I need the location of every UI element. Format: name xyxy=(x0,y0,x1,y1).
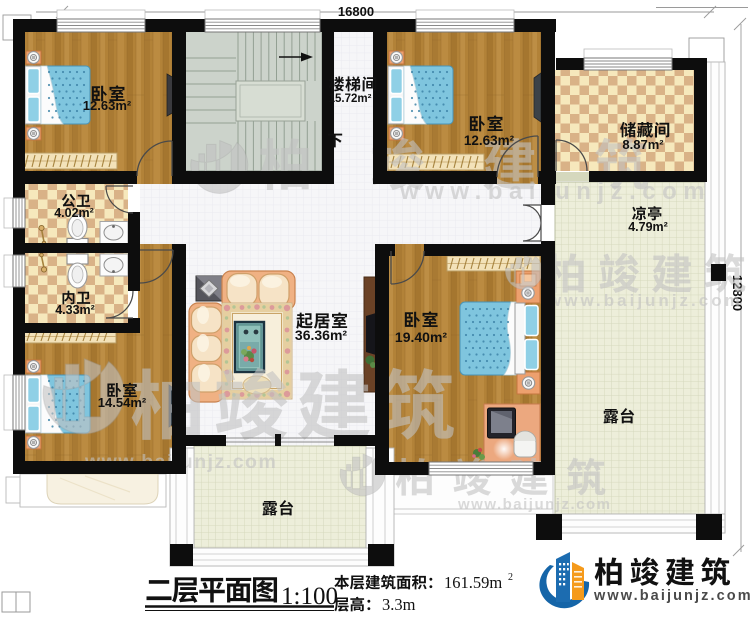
svg-text:12.63m²: 12.63m² xyxy=(464,133,515,148)
svg-text:www.baijunjz.com: www.baijunjz.com xyxy=(593,588,750,604)
svg-text:4.33m²: 4.33m² xyxy=(55,303,95,317)
svg-text:3.3m: 3.3m xyxy=(382,595,416,614)
svg-text:2: 2 xyxy=(508,572,513,583)
svg-text:16800: 16800 xyxy=(338,4,374,19)
svg-text:14.54m²: 14.54m² xyxy=(98,395,147,410)
svg-text:4.79m²: 4.79m² xyxy=(628,220,668,234)
svg-text:8.87m²: 8.87m² xyxy=(622,137,664,152)
svg-text:12.63m²: 12.63m² xyxy=(83,98,132,113)
svg-text:www.baijunjz.com: www.baijunjz.com xyxy=(457,496,611,513)
svg-text:36.36m²: 36.36m² xyxy=(295,327,347,343)
svg-text:4.02m²: 4.02m² xyxy=(54,206,94,220)
svg-text:15.72m²: 15.72m² xyxy=(329,93,372,105)
svg-text:19.40m²: 19.40m² xyxy=(395,329,447,345)
svg-text:161.59m: 161.59m xyxy=(444,573,502,592)
svg-text:www.baijunjz.com: www.baijunjz.com xyxy=(547,291,743,310)
